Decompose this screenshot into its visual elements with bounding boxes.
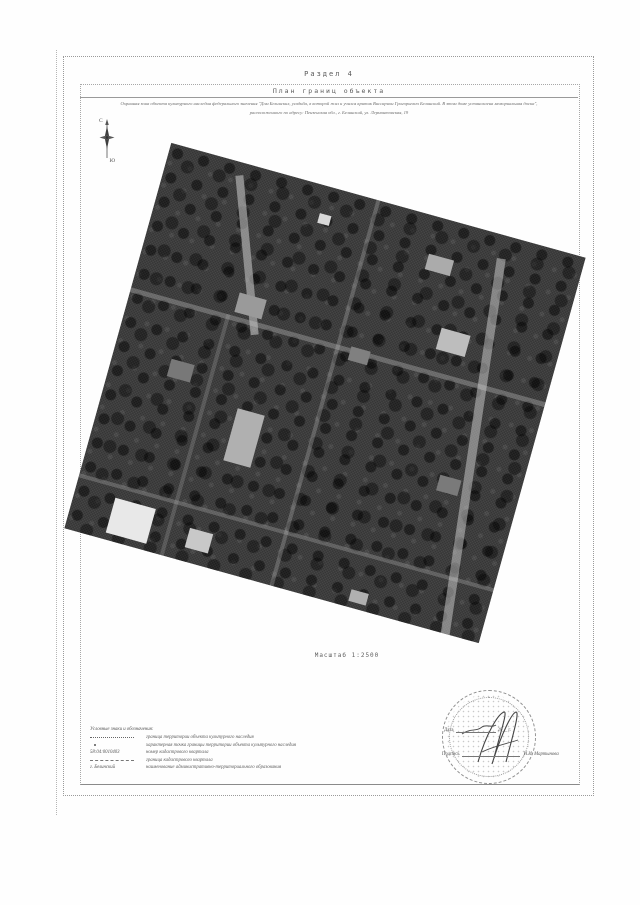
- cadastral-number-symbol: 58:04:0010403: [90, 750, 146, 755]
- boundary-point-symbol: [90, 744, 146, 746]
- street-band: [160, 314, 231, 556]
- legend-row: характерная точка границы территории объ…: [90, 743, 380, 748]
- legend-header: Условные знаки и обозначения:: [90, 727, 380, 732]
- compass-north-label: С: [99, 118, 103, 124]
- stamp-date-suffix: 20__ г.: [498, 728, 511, 733]
- legend-label: граница территории объекта культурного н…: [146, 735, 254, 740]
- building-patch: [167, 359, 195, 383]
- plan-title: План границ объекта: [273, 87, 385, 95]
- description-line-1: Охранная зона объекта культурного наслед…: [96, 101, 562, 106]
- description-line-2: расположенного по адресу: Пензенская обл…: [96, 110, 562, 115]
- compass-south-label: Ю: [110, 158, 116, 164]
- stamp-date-label: Дата: [444, 728, 454, 733]
- section-label: Раздел 4: [80, 70, 578, 78]
- building-patch: [234, 293, 266, 320]
- date-blank-line: [456, 728, 496, 733]
- page-edge-dotted-line: [56, 50, 57, 815]
- building-patch: [317, 213, 331, 226]
- building-patch: [436, 328, 471, 357]
- building-patch: [348, 346, 371, 365]
- document-page: Раздел 4 План границ объекта Охранная зо…: [0, 0, 640, 905]
- stamp-block: Дата 20__ г. Подпись Н.И. Мартынова: [440, 688, 585, 788]
- plan-title-bar: План границ объекта: [80, 84, 578, 98]
- legend-label: граница кадастрового квартала: [146, 758, 213, 763]
- building-patch: [223, 408, 264, 468]
- legend-label: характерная точка границы территории объ…: [146, 743, 296, 748]
- building-patch: [348, 589, 369, 605]
- compass-rose-icon: С Ю: [92, 114, 122, 164]
- building-patch: [106, 498, 156, 544]
- signature-blank-line: [462, 752, 520, 757]
- legend-row: 58:04:0010403 номер кадастрового квартал…: [90, 750, 380, 755]
- building-patch: [185, 528, 213, 554]
- cadastral-number: 58:04:0010403: [90, 750, 120, 755]
- legend-row: граница территории объекта культурного н…: [90, 735, 380, 740]
- signature-icon: [448, 696, 538, 776]
- street-band: [270, 200, 381, 587]
- scale-caption: Масштаб 1:2500: [247, 652, 447, 659]
- quarter-dashed-line-symbol: [90, 760, 146, 761]
- legend-label: номер кадастрового квартала: [146, 750, 209, 755]
- boundary-dotted-line-symbol: [90, 737, 146, 738]
- settlement-name-symbol: г. Белинский: [90, 765, 146, 770]
- legend-row: граница кадастрового квартала: [90, 758, 380, 763]
- building-patch: [436, 475, 461, 496]
- building-patch: [425, 254, 454, 276]
- settlement-name: г. Белинский: [90, 765, 115, 770]
- legend-row: г. Белинский наименование административн…: [90, 765, 380, 770]
- stamp-signature-label: Подпись: [442, 752, 460, 757]
- legend-label: наименование административно-территориал…: [146, 765, 281, 770]
- legend-block: Условные знаки и обозначения: граница те…: [90, 727, 380, 773]
- stamp-signature-row: Подпись Н.И. Мартынова: [442, 752, 584, 757]
- stamp-date-row: Дата 20__ г.: [444, 728, 544, 733]
- signer-name: Н.И. Мартынова: [524, 752, 559, 757]
